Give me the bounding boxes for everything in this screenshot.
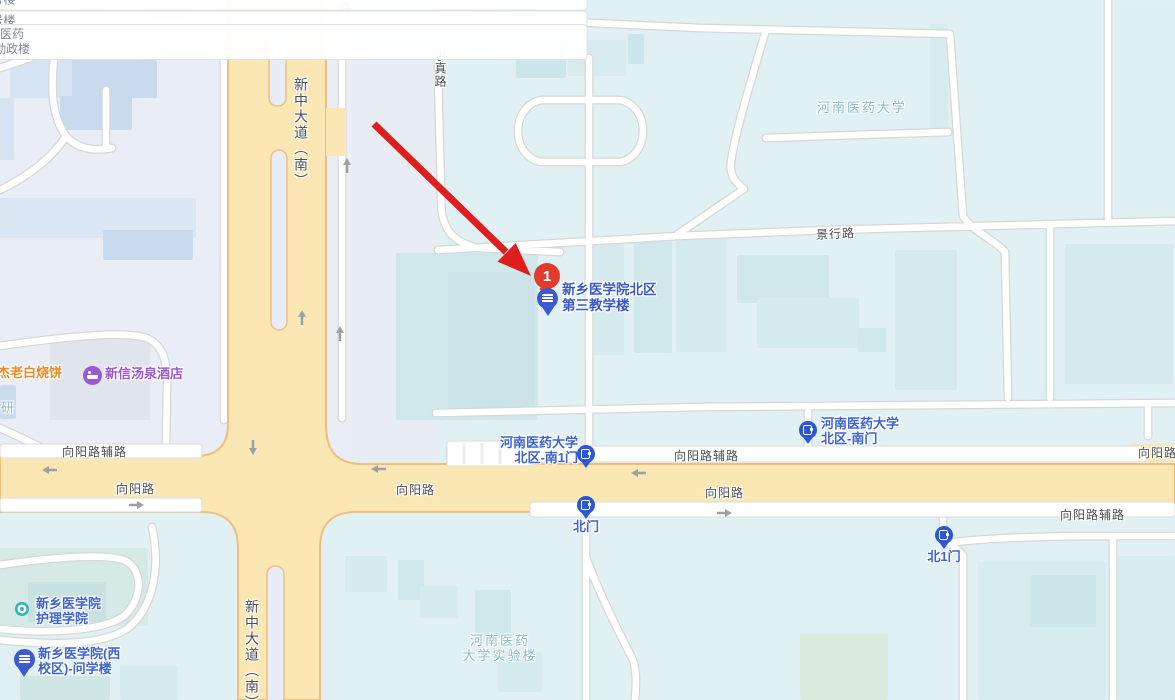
- road-label: 向阳路: [705, 484, 744, 501]
- gate-icon[interactable]: [577, 496, 595, 514]
- poi-label-gate-beiqu-nanmen[interactable]: 河南医药大学北区-南门: [821, 416, 899, 446]
- poi-label-gate-beiqu-nan1men[interactable]: 河南医药大学北区-南1门: [500, 435, 578, 465]
- road-label: 新中大道（南）: [242, 599, 262, 700]
- gate-icon[interactable]: [577, 445, 595, 463]
- marker-label-line1: 新乡医学院北区: [562, 282, 657, 298]
- map-canvas[interactable]: 路求真路新中大道（南）新中大道（南）景行路向阳路辅路向阳路向阳路向阳路辅路向阳路…: [0, 0, 1175, 700]
- campus-area-label: 研: [1, 400, 16, 415]
- poi-label-gate-bei1men[interactable]: 北1门: [927, 549, 960, 564]
- road-label: 向阳路辅路: [1060, 506, 1125, 523]
- gate-icon[interactable]: [935, 526, 953, 544]
- building-name-label: 5号楼: [0, 0, 588, 11]
- road-label: 向阳路辅路: [62, 443, 127, 460]
- marker-badge: 1: [534, 263, 560, 289]
- road-label: 新中大道（南）: [291, 77, 311, 189]
- road-label: 向阳路: [116, 480, 155, 497]
- road-label: 向阳路辅路: [1138, 444, 1175, 461]
- road-label: 景行路: [816, 224, 856, 243]
- building-icon: [542, 294, 553, 303]
- poi-label-wenxue-building[interactable]: 新乡医学院(西校区)-问学楼: [38, 646, 120, 676]
- poi-label-laobai-shaobing[interactable]: 杰老白烧饼: [0, 365, 62, 380]
- marker-label[interactable]: 新乡医学院北区 第三教学楼: [562, 282, 657, 313]
- labels-layer: 路求真路新中大道（南）新中大道（南）景行路向阳路辅路向阳路向阳路向阳路辅路向阳路…: [0, 0, 1175, 700]
- pin-icon[interactable]: [14, 649, 35, 670]
- dot-icon[interactable]: [15, 602, 29, 616]
- building-name-label: 河南医药大学勤政楼: [0, 24, 588, 60]
- poi-label-gate-beimen[interactable]: 北门: [573, 519, 599, 534]
- destination-pin-icon[interactable]: [537, 288, 558, 309]
- campus-area-label: 河南医药大学: [817, 100, 907, 115]
- poi-label-nursing-college[interactable]: 新乡医学院护理学院: [36, 596, 101, 626]
- road-label: 向阳路辅路: [674, 447, 739, 464]
- poi-label-xinxin-hotspring-hotel[interactable]: 新信汤泉酒店: [105, 366, 183, 381]
- marker-label-line2: 第三教学楼: [562, 298, 657, 314]
- road-label: 向阳路: [396, 481, 435, 498]
- gate-icon[interactable]: [799, 421, 817, 439]
- hotel-icon[interactable]: [83, 366, 102, 385]
- campus-area-label: 河南医药大学实验楼: [462, 633, 537, 663]
- marker-number: 1: [543, 268, 551, 285]
